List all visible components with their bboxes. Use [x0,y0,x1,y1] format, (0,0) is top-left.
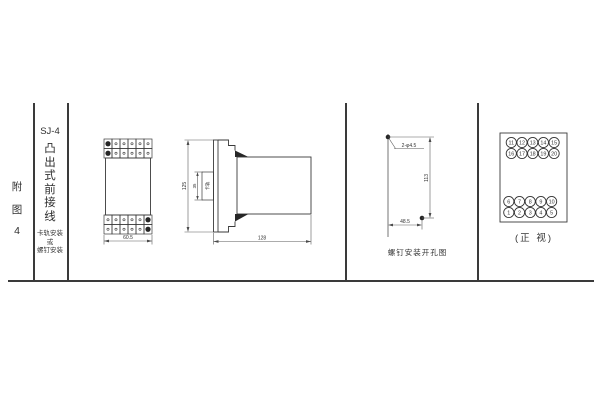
front-flange [214,140,219,232]
screw-head-filled [105,151,110,156]
terminal-cell [144,139,152,149]
terminal-cell [112,225,120,235]
vertical-dimension-label: 113 [424,174,430,182]
terminal-cell [144,149,152,159]
horizontal-dimension: 48.5 [388,219,422,226]
terminal-number: 10 [549,199,555,205]
terminal-view-caption: (正 视) [495,230,573,244]
holes-callout: 2-φ4.5 [389,139,424,150]
terminal-number: 16 [508,151,514,157]
terminal-cell [112,215,120,225]
type-label: 凸 出 式 前 接 线 [34,143,66,224]
screw-dot [131,228,133,230]
side-view-drawing: 125 35 卡轨 128 [180,130,325,250]
vertical-dimension: 113 [424,137,431,218]
screw-dot [123,228,125,230]
drawing-sheet: 附 图 4 SJ-4 凸 出 式 前 接 线 卡轨安装 或 螺钉安装 [0,0,600,400]
model-type-column: SJ-4 凸 出 式 前 接 线 卡轨安装 或 螺钉安装 [34,126,66,256]
terminal-cell [120,149,128,159]
terminal-number: 9 [539,199,542,205]
terminal-cell [120,215,128,225]
index-char: 4 [14,225,20,237]
terminal-cell [104,225,112,235]
table-border-v2 [67,103,69,281]
screw-dot [123,143,125,145]
mount-note: 卡轨安装 或 螺钉安装 [34,230,66,256]
depth-dimension-label: 128 [258,236,267,242]
terminal-cell [136,215,144,225]
terminal-number: 2 [518,210,521,216]
screw-dot [107,228,109,230]
drill-hole-diagram: 2-φ4.5 113 48.5 [360,125,470,250]
terminal-number: 13 [530,140,536,146]
terminal-number: 18 [530,151,536,157]
terminal-number: 5 [550,210,553,216]
terminal-cell [104,215,112,225]
screw-head-filled [145,227,150,232]
relay-body-outline [106,158,151,215]
top-step [218,140,235,151]
model-label: SJ-4 [34,126,66,137]
terminal-cell [128,139,136,149]
type-char: 凸 [44,143,56,157]
mount-note-line: 卡轨安装 [34,230,66,239]
terminal-number: 11 [508,140,514,146]
terminal-cell [128,215,136,225]
front-view-drawing: 60.5 [95,130,165,250]
index-char: 图 [12,202,23,217]
screw-dot [131,143,133,145]
terminal-circles-top: 11121314151617181920 [506,137,559,158]
table-border-v4 [477,103,479,281]
terminal-circles-bottom: 67891012345 [504,196,557,217]
terminal-cell [128,149,136,159]
screw-dot [139,228,141,230]
horizontal-dimension-label: 48.5 [400,219,410,225]
terminal-cell [112,139,120,149]
type-char: 式 [44,170,56,184]
top-wedge [235,151,249,158]
terminal-cell [120,225,128,235]
screw-dot [115,219,117,221]
terminal-cell [136,149,144,159]
width-dimension-label: 60.5 [123,235,133,241]
type-char: 前 [44,184,56,198]
terminal-number: 15 [551,140,557,146]
screw-dot [107,219,109,221]
terminal-number: 20 [551,151,557,157]
rail-label: 卡轨 [204,181,211,190]
holes-label: 2-φ4.5 [402,143,417,149]
screw-dot [123,219,125,221]
screw-dot [115,228,117,230]
terminal-cell [136,139,144,149]
screw-head-filled [105,141,110,146]
terminal-cell [112,149,120,159]
screw-dot [131,152,133,154]
terminal-number: 4 [539,210,542,216]
rail-dimension-label: 35 [192,183,197,188]
screw-dot [115,152,117,154]
terminal-number: 8 [529,199,532,205]
type-char: 线 [44,211,56,225]
terminal-number: 19 [540,151,546,157]
terminal-number: 1 [507,210,510,216]
drill-diagram-caption: 螺钉安装开孔图 [360,247,475,258]
terminal-number: 17 [519,151,525,157]
mount-note-line: 螺钉安装 [34,247,66,256]
terminal-layout-drawing: 11121314151617181920 67891012345 [495,125,595,225]
screw-dot [115,143,117,145]
screw-dot [139,143,141,145]
screw-dot [147,143,149,145]
terminal-number: 12 [519,140,525,146]
height-dimension-label: 125 [182,182,188,191]
bottom-step [218,222,235,233]
terminal-number: 6 [507,199,510,205]
screw-dot [131,219,133,221]
screw-dot [147,152,149,154]
terminal-number: 7 [518,199,521,205]
screw-head-filled [145,217,150,222]
terminal-cell [136,225,144,235]
terminal-cell [120,139,128,149]
terminal-number: 14 [540,140,546,146]
case-body [237,157,311,214]
mount-note-line: 或 [34,239,66,248]
screw-dot [139,219,141,221]
rail-dimension: 35 卡轨 [192,172,211,200]
table-border-v3 [345,103,347,281]
bottom-wedge [235,214,249,222]
index-char: 附 [12,179,23,194]
screw-dot [123,152,125,154]
terminal-number: 3 [529,210,532,216]
figure-index-label: 附 图 4 [6,179,28,237]
screw-terminals-top [104,139,152,158]
type-char: 出 [44,157,56,171]
table-border-bottom [8,280,594,282]
screw-terminals-bottom [104,215,152,234]
terminal-cell [128,225,136,235]
width-dimension: 60.5 [104,235,152,245]
screw-dot [139,152,141,154]
type-char: 接 [44,197,56,211]
